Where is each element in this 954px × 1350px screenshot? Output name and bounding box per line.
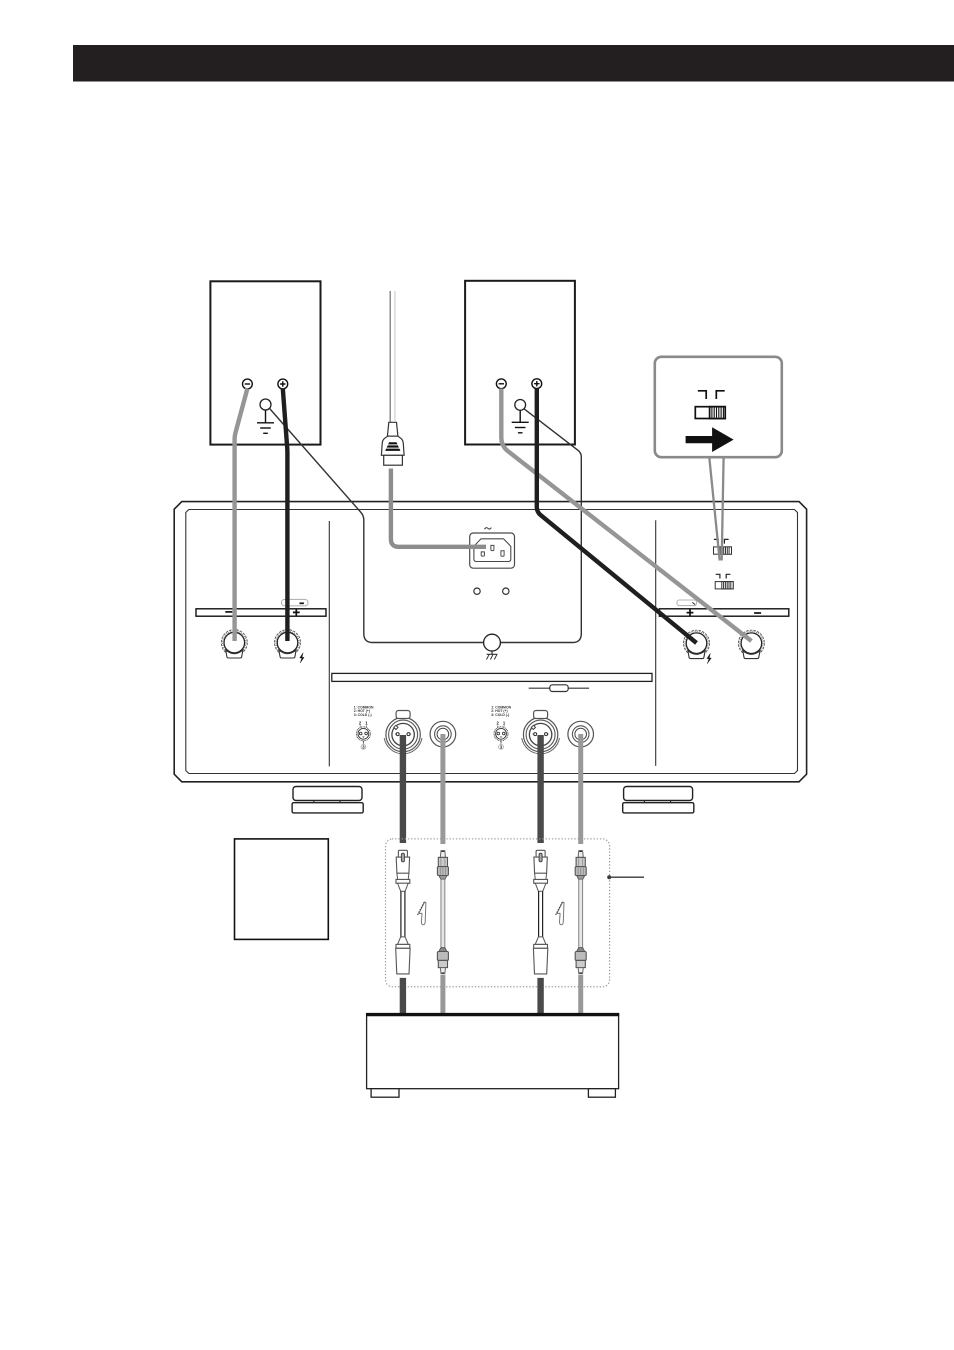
- svg-text:3: COLD (-): 3: COLD (-): [491, 713, 509, 717]
- svg-text:3: COLD (-): 3: COLD (-): [354, 713, 372, 717]
